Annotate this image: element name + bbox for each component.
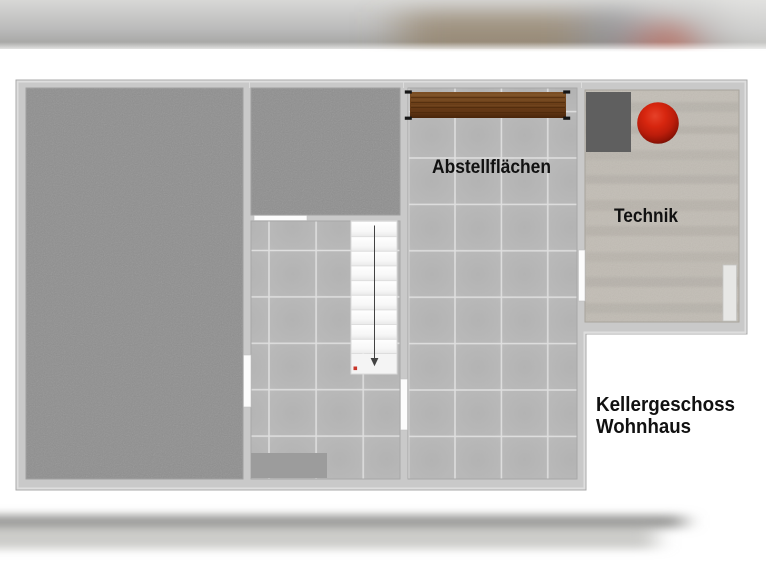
svg-text:Technik: Technik [614, 206, 678, 227]
svg-text:Wohnhaus: Wohnhaus [596, 416, 691, 438]
svg-text:Kellergeschoss: Kellergeschoss [596, 394, 735, 416]
svg-text:Abstellflächen: Abstellflächen [432, 157, 551, 178]
